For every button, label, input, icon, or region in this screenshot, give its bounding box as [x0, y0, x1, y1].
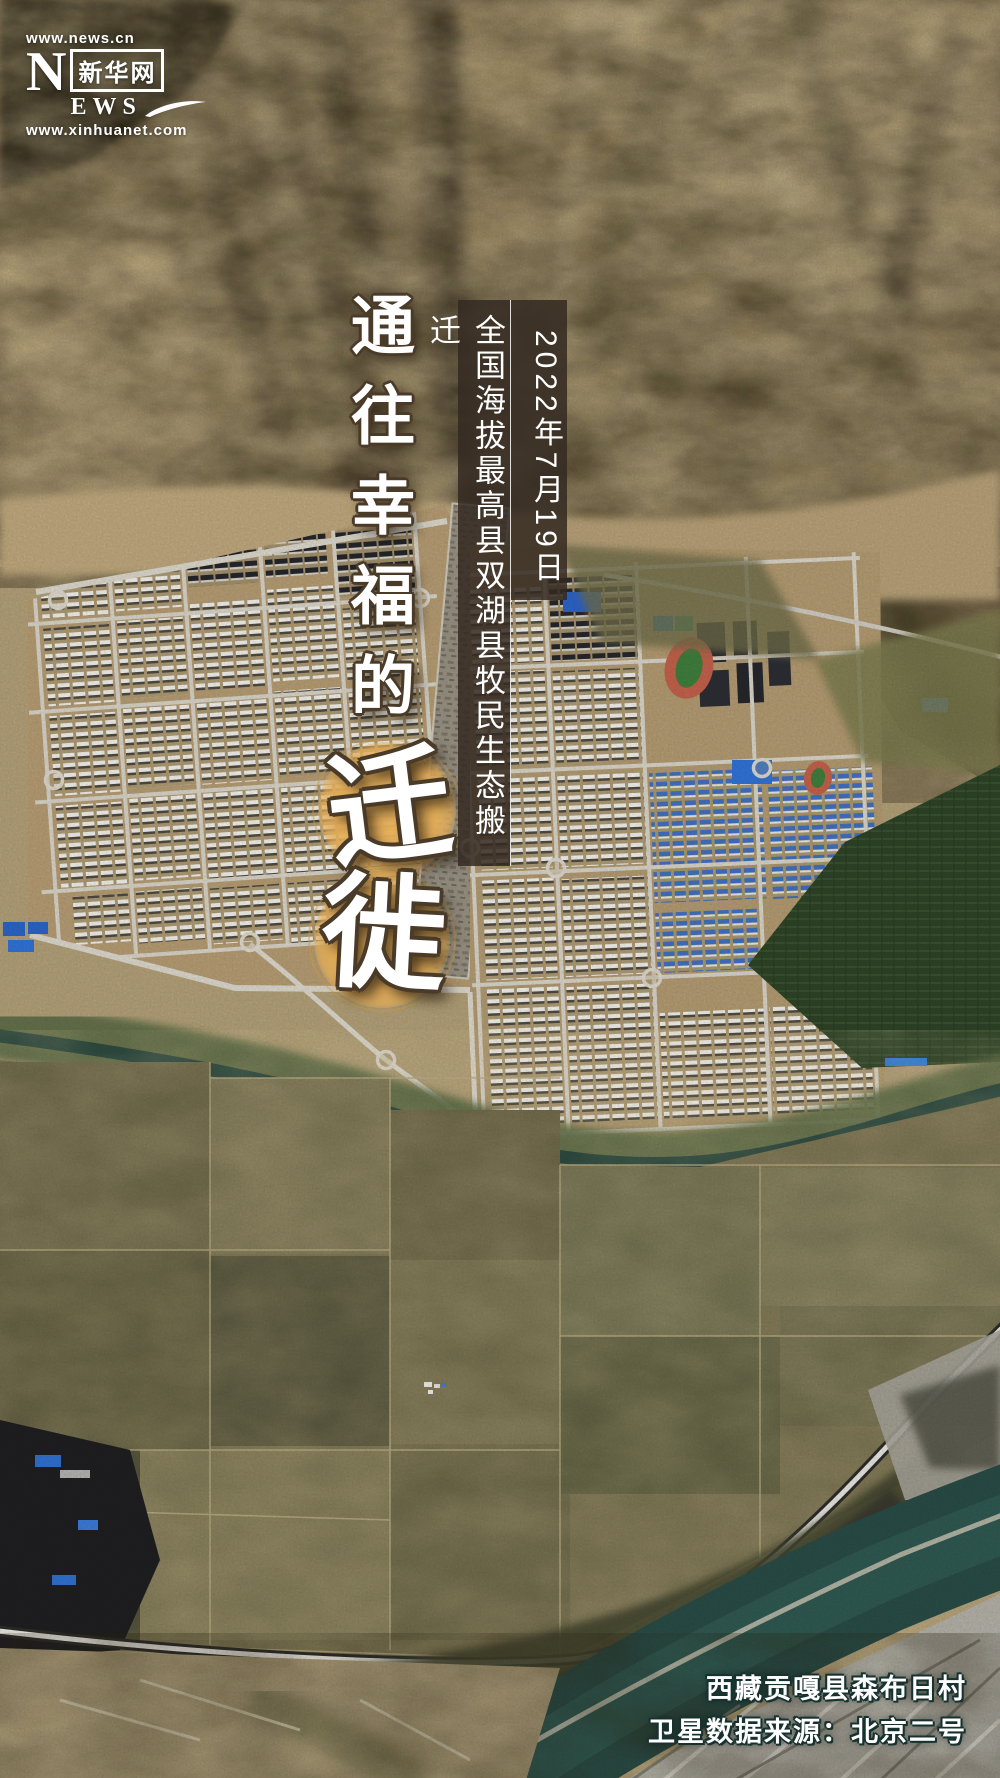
logo-swoosh-icon — [144, 98, 208, 118]
logo-brand-box: 新华网 — [70, 49, 164, 92]
info-banner: 全国海拔最高县双湖县牧民生态搬迁 2022年7月19日 — [458, 300, 567, 866]
caption-location: 西藏贡嘎县森布日村 — [648, 1668, 967, 1711]
title-char-xi: 徙 — [319, 871, 449, 1001]
logo-n-letter: N — [26, 49, 66, 97]
banner-date-text: 2022年7月19日 — [511, 300, 567, 600]
logo-ews-letters: EWS — [70, 94, 141, 121]
poster-title-vertical: 通往幸福的 — [345, 292, 409, 742]
caption-block: 西藏贡嘎县森布日村 卫星数据来源：北京二号 — [648, 1668, 967, 1754]
caption-data-source: 卫星数据来源：北京二号 — [648, 1711, 967, 1754]
banner-info-text: 全国海拔最高县双湖县牧民生态搬迁 — [458, 300, 511, 866]
satellite-image — [0, 0, 1000, 1778]
news-poster: www.news.cn N 新华网 EWS www.xinhuanet.com … — [0, 0, 1000, 1778]
photo-grain — [0, 0, 1000, 1778]
logo-bottom-url: www.xinhuanet.com — [26, 122, 208, 139]
xinhuanet-logo: www.news.cn N 新华网 EWS www.xinhuanet.com — [26, 30, 208, 139]
title-char-qian: 迁 — [321, 741, 459, 879]
